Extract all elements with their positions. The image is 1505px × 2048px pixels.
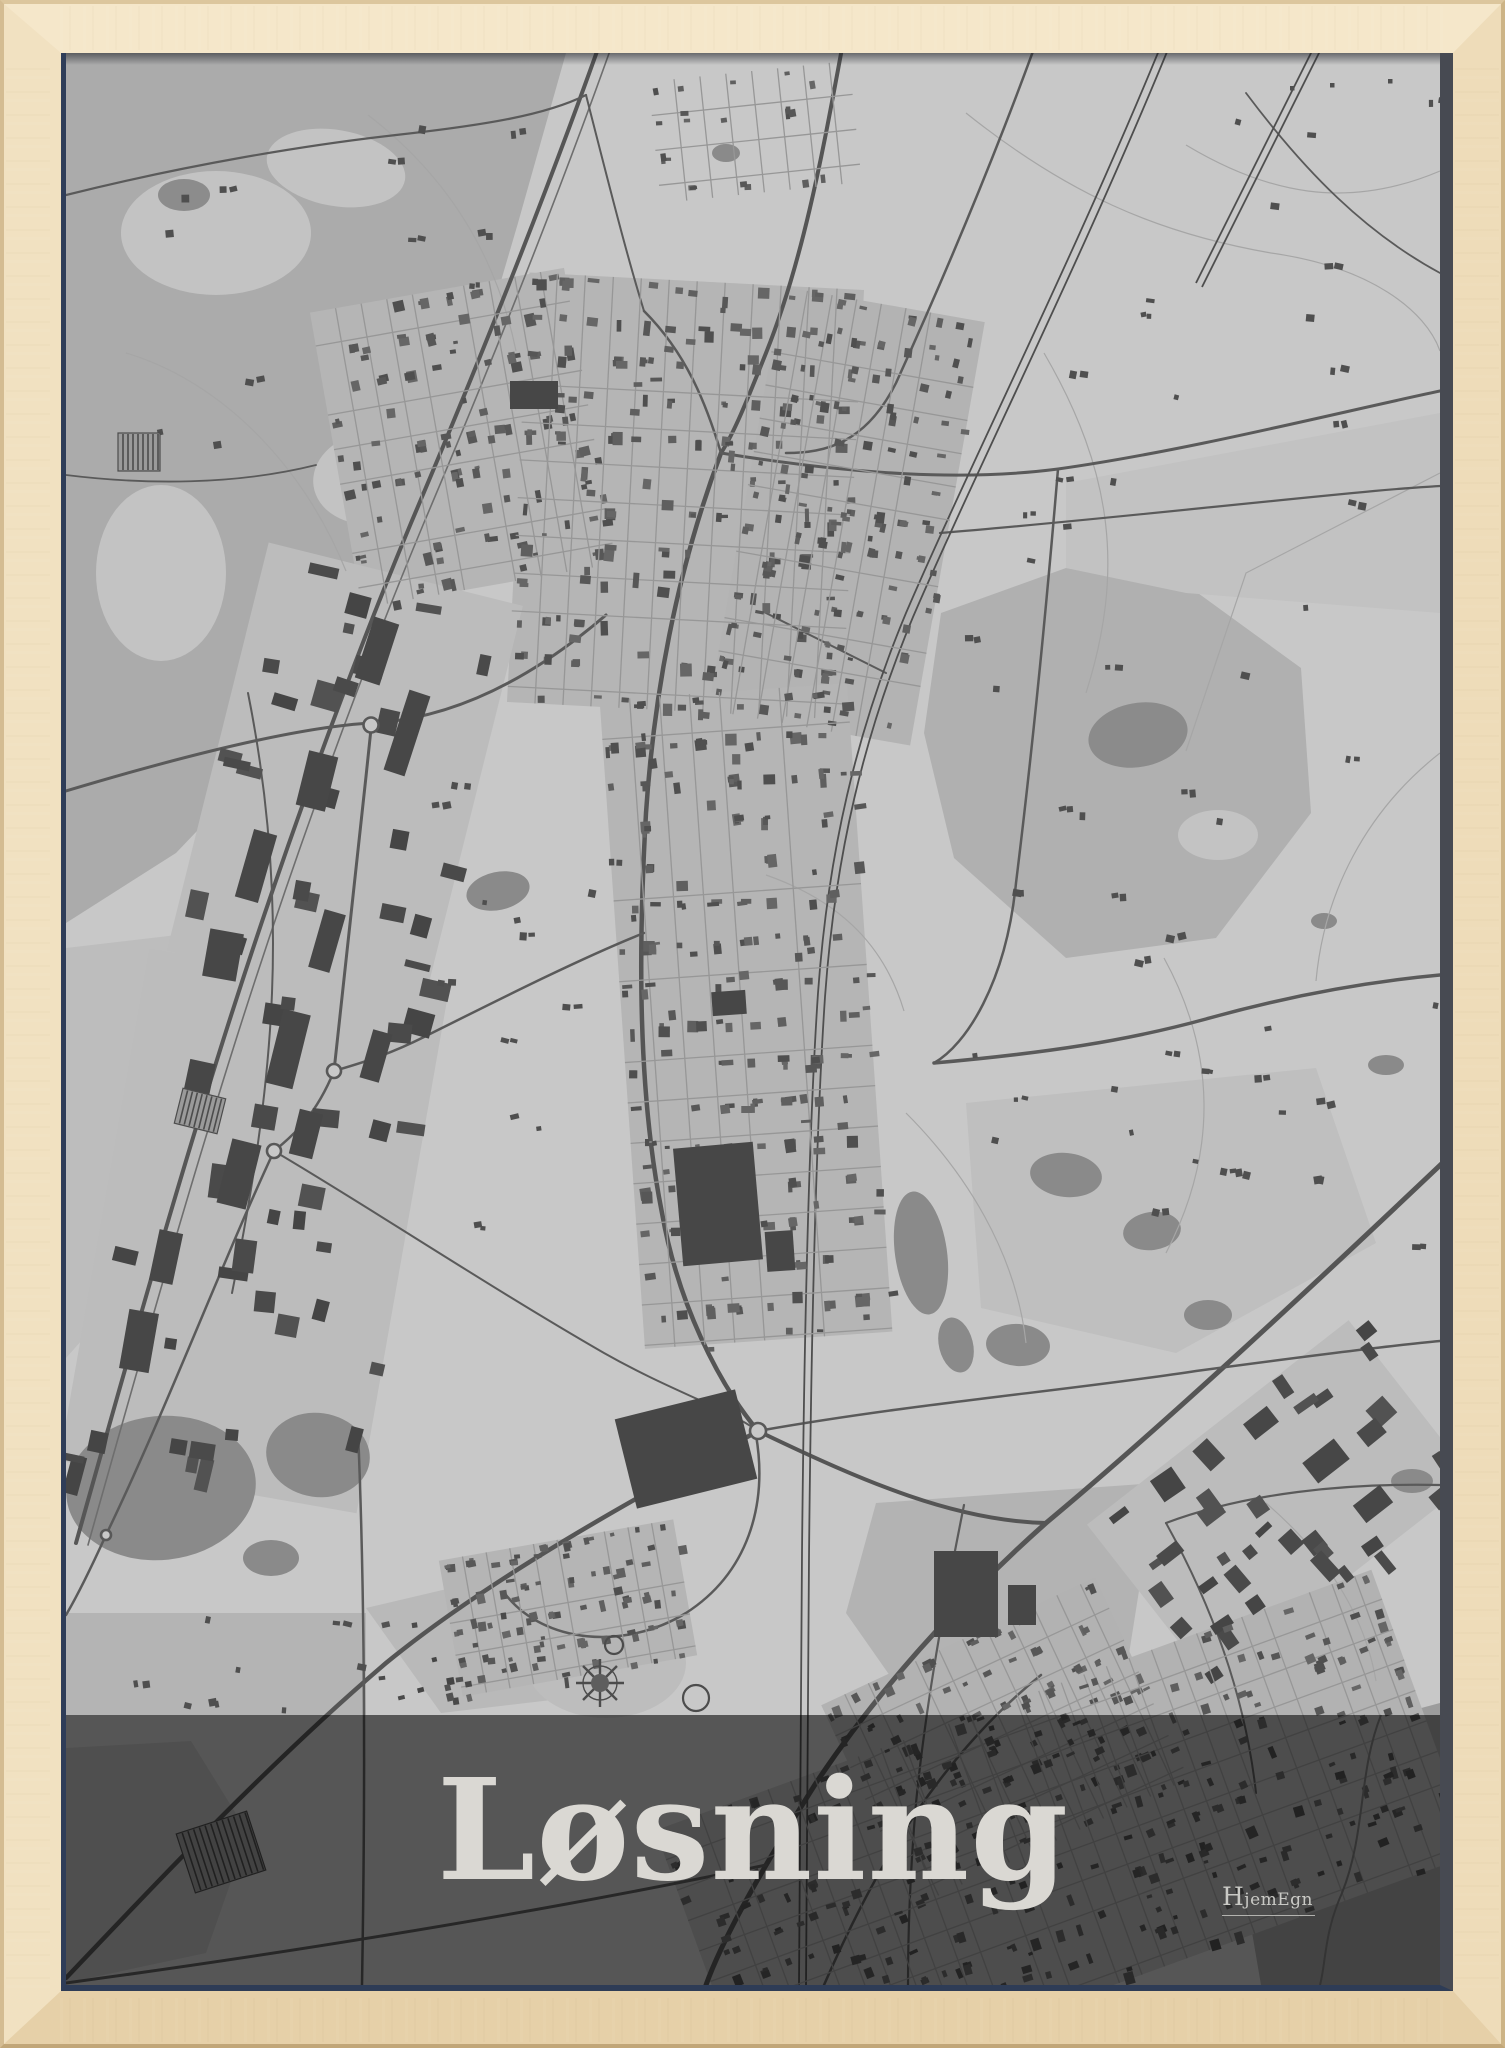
poster-title: Løsning bbox=[66, 1761, 1440, 1901]
brand-logo: HjemEgn bbox=[1222, 1881, 1315, 1916]
framed-map-poster: Løsning HjemEgn bbox=[0, 0, 1505, 2048]
park-flower-feature bbox=[576, 1659, 624, 1707]
map-layers bbox=[66, 53, 1440, 1985]
map-canvas bbox=[66, 53, 1440, 1985]
map-poster: Løsning HjemEgn bbox=[61, 53, 1453, 1991]
